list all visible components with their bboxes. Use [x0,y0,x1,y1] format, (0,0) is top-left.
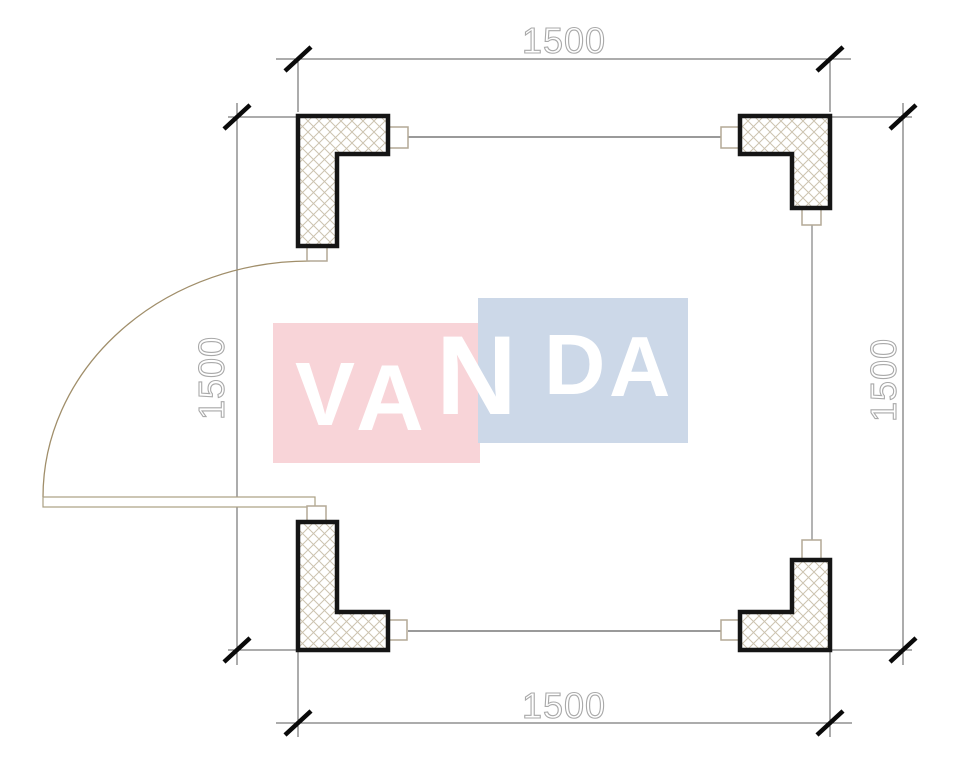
column-top-left [298,116,388,246]
column-bottom-right [740,560,830,650]
dimension-label-left: 1500 [194,318,230,438]
tab [721,127,740,148]
door [43,261,315,507]
floor-plan-canvas: V A N D A [0,0,960,768]
column-bottom-left [298,522,388,650]
tab [802,540,821,560]
dimension-label-top: 1500 [504,24,624,58]
door-leaf [43,497,315,507]
dimension-label-bottom: 1500 [504,689,624,723]
column-top-right [740,116,830,208]
connector-tabs [307,127,821,640]
wall-lines [408,137,812,631]
plan-drawing [0,0,960,768]
corner-columns [298,116,830,650]
dimension-label-right: 1500 [866,320,902,440]
tab [388,620,407,640]
tab [388,127,408,148]
tab [721,620,740,640]
tab [802,208,821,225]
tab [307,506,326,522]
door-swing-arc [43,261,310,497]
